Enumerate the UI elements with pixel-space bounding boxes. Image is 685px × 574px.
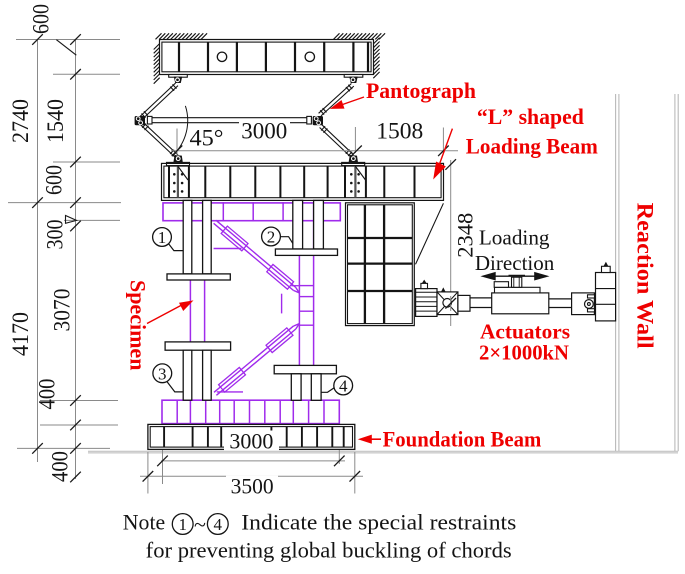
svg-text:2348: 2348 — [452, 213, 477, 258]
svg-text:Note: Note — [123, 509, 165, 534]
svg-text:400: 400 — [35, 379, 60, 410]
svg-text:600: 600 — [42, 165, 67, 195]
svg-text:45°: 45° — [190, 126, 224, 151]
svg-text:1: 1 — [158, 228, 167, 247]
svg-text:3500: 3500 — [231, 473, 274, 498]
svg-text:4170: 4170 — [8, 312, 33, 356]
svg-text:Pantograph: Pantograph — [366, 78, 476, 103]
svg-text:1540: 1540 — [43, 99, 68, 143]
svg-text:3000: 3000 — [241, 119, 287, 144]
svg-text:Direction: Direction — [475, 251, 555, 275]
svg-text:1508: 1508 — [376, 119, 423, 144]
svg-text:Specimen: Specimen — [125, 280, 150, 371]
svg-text:Reaction Wall: Reaction Wall — [632, 203, 658, 349]
svg-text:Indicate the special restraint: Indicate the special restraints — [241, 509, 516, 534]
svg-text:1: 1 — [178, 515, 187, 534]
svg-text:Foundation Beam: Foundation Beam — [383, 427, 542, 452]
svg-text:400: 400 — [48, 451, 73, 482]
svg-text:4: 4 — [214, 515, 223, 534]
svg-text:300: 300 — [43, 220, 68, 250]
svg-text:3000: 3000 — [229, 429, 273, 454]
svg-text:3070: 3070 — [50, 289, 75, 332]
svg-text:2740: 2740 — [8, 99, 33, 143]
svg-text:~: ~ — [194, 512, 206, 537]
svg-text:2: 2 — [267, 228, 276, 247]
svg-text:Loading Beam: Loading Beam — [466, 134, 598, 159]
svg-text:4: 4 — [339, 377, 348, 396]
svg-text:for preventing global buckling: for preventing global buckling of chords — [146, 538, 512, 563]
svg-text:Loading: Loading — [479, 225, 550, 249]
svg-text:600: 600 — [29, 4, 54, 34]
svg-text:3: 3 — [158, 364, 167, 383]
svg-text:2×1000kN: 2×1000kN — [479, 340, 569, 364]
svg-text:“L” shaped: “L” shaped — [477, 104, 584, 129]
